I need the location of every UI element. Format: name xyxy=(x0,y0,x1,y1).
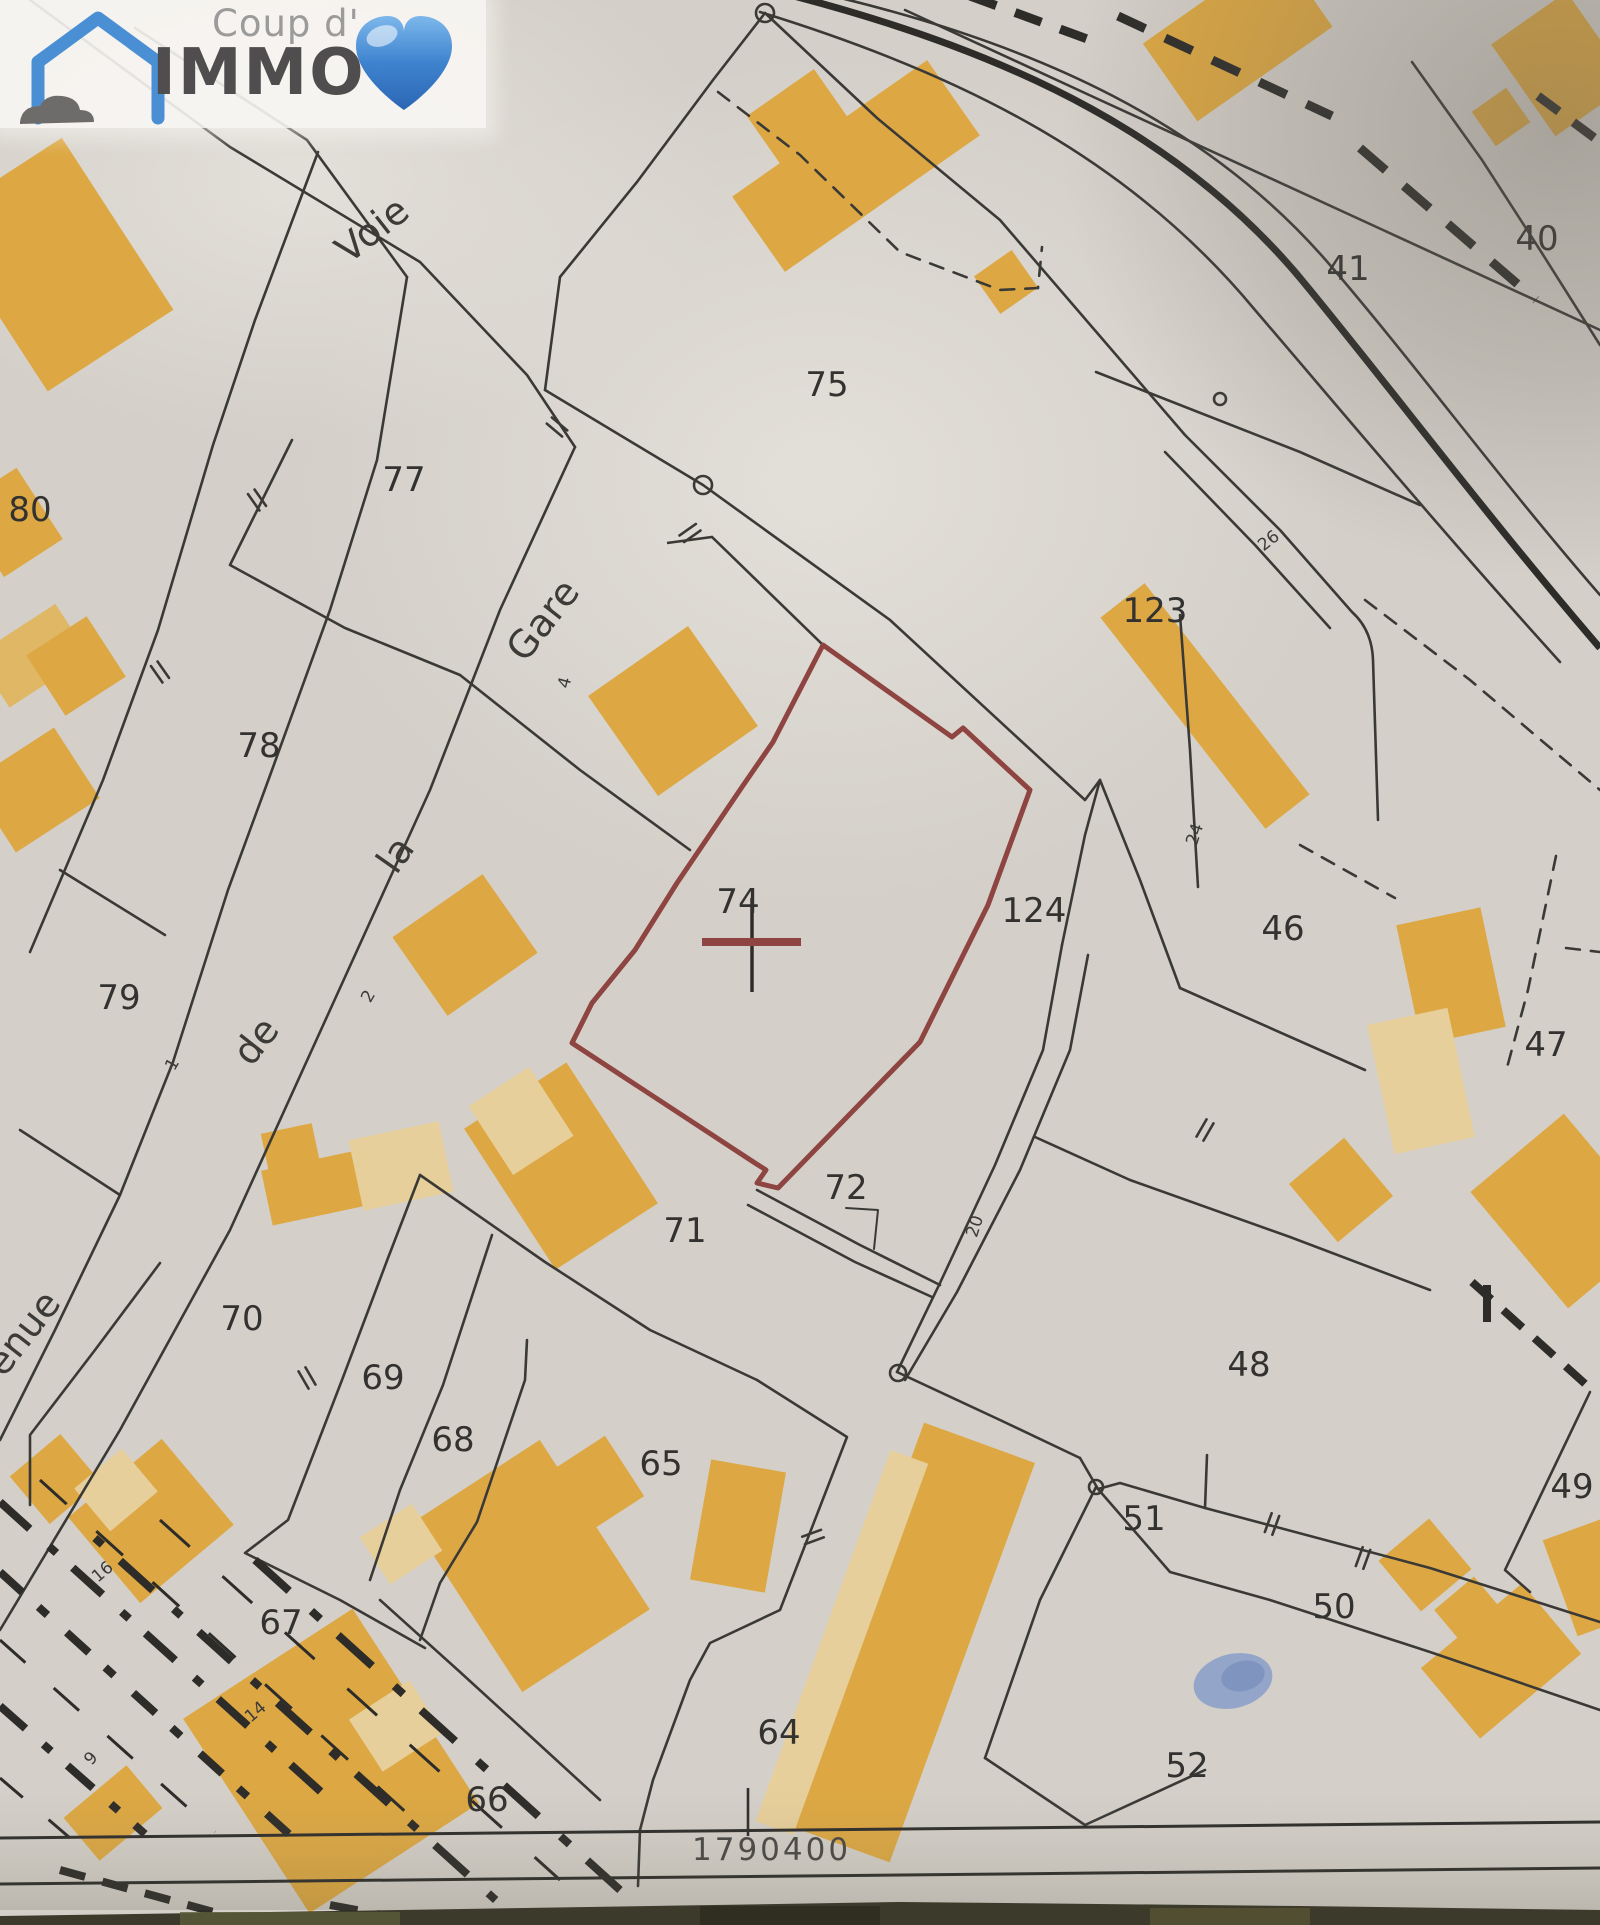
parcel-label-47: 47 xyxy=(1524,1025,1567,1065)
cadastral-map: 1790400 80777541401237879741244647717270… xyxy=(0,0,1600,1925)
parcel-label-68: 68 xyxy=(431,1420,474,1460)
parcel-label-79: 79 xyxy=(97,978,140,1018)
cloud-icon xyxy=(20,96,94,124)
parcel-label-50: 50 xyxy=(1312,1587,1355,1627)
parcel-label-74: 74 xyxy=(716,882,759,922)
parcel-label-71: 71 xyxy=(663,1211,706,1251)
photo-shadow-bottom xyxy=(0,1790,1600,1910)
photo-shadow-top-right xyxy=(1060,0,1600,580)
parcel-label-78: 78 xyxy=(237,726,280,766)
parcel-label-51: 51 xyxy=(1122,1499,1165,1539)
parcel-label-48: 48 xyxy=(1227,1345,1270,1385)
parcel-label-52: 52 xyxy=(1165,1746,1208,1786)
parcel-label-124: 124 xyxy=(1002,891,1067,931)
parcel-label-64: 64 xyxy=(757,1713,800,1753)
parcel-label-70: 70 xyxy=(220,1299,263,1339)
parcel-label-123: 123 xyxy=(1123,591,1188,631)
coup-dimmo-logo: Coup d' IMMO xyxy=(0,0,486,128)
parcel-label-72: 72 xyxy=(824,1168,867,1208)
parcel-label-67: 67 xyxy=(259,1603,302,1643)
screenshot-root: { "logo": { "brand_prefix": "Coup d'", "… xyxy=(0,0,1600,1925)
logo-brand-name: IMMO xyxy=(152,36,366,110)
parcel-label-69: 69 xyxy=(361,1358,404,1398)
parcel-label-65: 65 xyxy=(639,1444,682,1484)
parcel-label-49: 49 xyxy=(1550,1467,1593,1507)
parcel-label-75: 75 xyxy=(805,365,848,405)
parcel-label-77: 77 xyxy=(382,460,425,500)
parcel-label-46: 46 xyxy=(1261,909,1304,949)
parcel-label-80: 80 xyxy=(8,490,51,530)
